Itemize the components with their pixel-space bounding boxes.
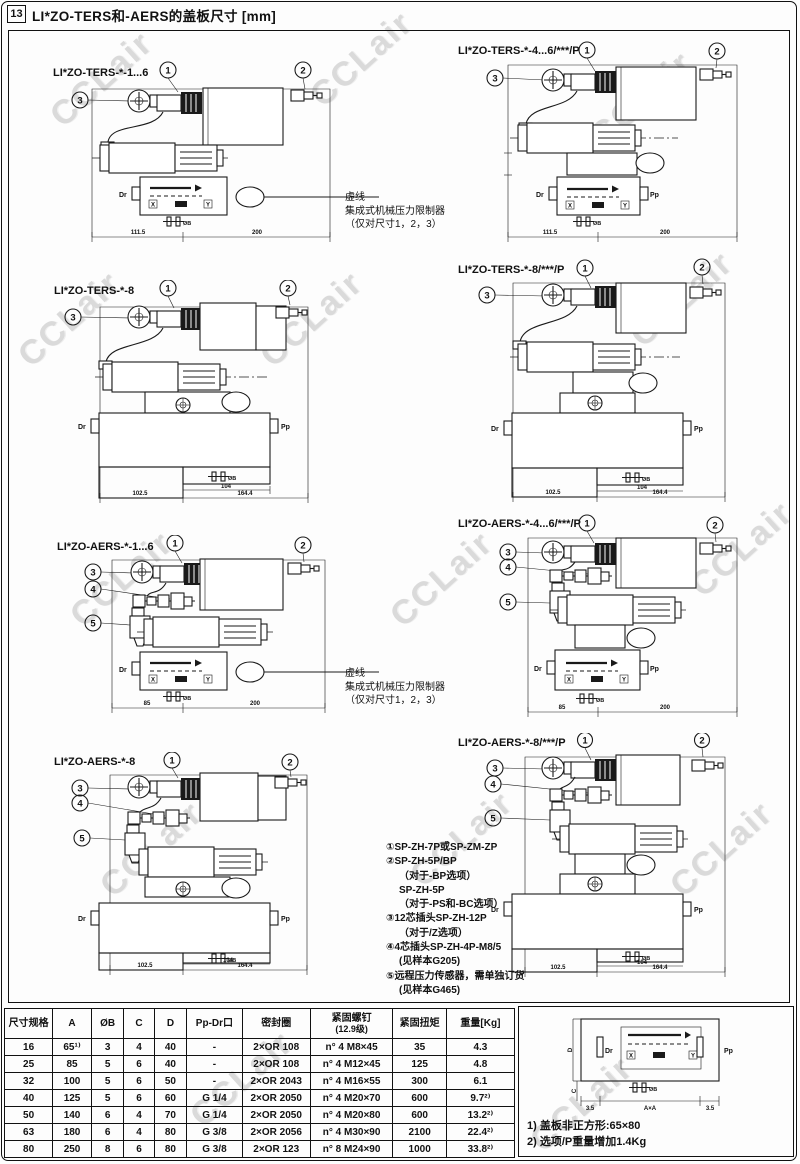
document-page: CCLair CCLair CCLair CCLair CCLair CCLai… (0, 0, 800, 1164)
callout-1: 1 (165, 284, 171, 295)
x-label: X (629, 1054, 633, 1060)
table-row: 40125 56 60G 1/4 2×OR 2050n° 4 M20×70 60… (5, 1090, 515, 1107)
page-title: LI*ZO-TERS和-AERS的盖板尺寸 [mm] (32, 5, 276, 25)
diagram-title: LI*ZO-AERS-*-1...6 (57, 541, 154, 553)
cell: 5 (91, 1073, 123, 1090)
cell: - (187, 1039, 243, 1056)
col-size: 尺寸规格 (5, 1009, 53, 1039)
dim-label: A×A (644, 1106, 657, 1112)
cell: 2×OR 2050 (242, 1090, 310, 1107)
port-label-pp: Pp (281, 424, 290, 431)
cell: 2100 (393, 1124, 446, 1141)
cell: 40 (154, 1056, 186, 1073)
col-d: D (154, 1009, 186, 1039)
cell: 80 (154, 1124, 186, 1141)
callout-3: 3 (484, 291, 489, 302)
diagram-aers-8: LI*ZO-AERS-*-8 1 2 3 4 5 Dr Pp 104 (40, 752, 415, 997)
dim-label: 164.4 (237, 491, 253, 497)
cell: 40 (154, 1039, 186, 1056)
cell: 100 (53, 1073, 92, 1090)
callout-1: 1 (582, 264, 588, 275)
callout-2: 2 (300, 541, 305, 552)
cell: 2×OR 2043 (242, 1073, 310, 1090)
cell: G 3/8 (187, 1124, 243, 1141)
cell: 63 (5, 1124, 53, 1141)
diagram-aers-4-6-p: LI*ZO-AERS-*-4...6/***/P 1 2 3 4 5 Dr Pp… (450, 512, 795, 740)
dim-label-d: D (568, 1047, 574, 1052)
diagram-title: LI*ZO-AERS-*-8 (54, 756, 135, 768)
section-number: 13 (7, 5, 26, 23)
port-label-pp: Pp (724, 1048, 733, 1055)
cover-plate-diagram: X Y Dr Pp D C 3.5 A×A 3.5 (533, 1013, 781, 1113)
cell: 600 (393, 1090, 446, 1107)
callout-2: 2 (714, 47, 719, 58)
note-line: （仅对尺寸1，2，3） (345, 218, 445, 232)
cell: 180 (53, 1124, 92, 1141)
cell: 35 (393, 1039, 446, 1056)
pressure-limiter-note: 虚线 集成式机械压力限制器 （仅对尺寸1，2，3） (345, 667, 445, 708)
diagram-title: LI*ZO-TERS-*-8/***/P (458, 264, 564, 276)
parts-list: ①SP-ZH-7P或SP-ZM-ZP ②SP-ZH-5P/BP （对于-BP选项… (386, 841, 524, 998)
cell: 6 (124, 1073, 154, 1090)
port-label-dr: Dr (119, 192, 127, 199)
cell: 50 (154, 1073, 186, 1090)
parts-line: ②SP-ZH-5P/BP (386, 855, 524, 869)
cell: 6 (124, 1090, 154, 1107)
cell: 3 (91, 1039, 123, 1056)
cell: 60 (154, 1090, 186, 1107)
cell: 8 (91, 1141, 123, 1158)
cell: n° 4 M20×70 (310, 1090, 393, 1107)
port-label-dr: Dr (534, 666, 542, 673)
cell: 6 (91, 1124, 123, 1141)
cell: 6 (91, 1107, 123, 1124)
size-table: 尺寸规格 A ØB C D Pp-Dr口 密封圈 紧固螺钉 (12.9级) 紧固… (4, 1008, 515, 1158)
cell: - (187, 1073, 243, 1090)
callout-3: 3 (77, 96, 82, 107)
dim-label: 104 (223, 958, 234, 964)
cell: 6 (124, 1141, 154, 1158)
dim-label: 104 (637, 485, 648, 491)
col-screws-line2: (12.9级) (335, 1024, 368, 1034)
diagram-ters-4-6-p: LI*ZO-TERS-*-4...6/***/P 1 2 3 Dr Pp 111… (450, 38, 795, 245)
cell: 50 (5, 1107, 53, 1124)
cell: 4.8 (446, 1056, 514, 1073)
cell: n° 4 M20×80 (310, 1107, 393, 1124)
callout-5: 5 (90, 619, 96, 630)
cell: 70 (154, 1107, 186, 1124)
diagram-title: LI*ZO-AERS-*-8/***/P (458, 737, 566, 749)
cell: 6.1 (446, 1073, 514, 1090)
col-b: ØB (91, 1009, 123, 1039)
cell: 5 (91, 1056, 123, 1073)
dim-label: 3.5 (706, 1106, 715, 1112)
callout-5: 5 (79, 834, 85, 845)
callout-3: 3 (492, 764, 497, 775)
port-label-pp: Pp (281, 916, 290, 923)
callout-4: 4 (490, 780, 496, 791)
cell: - (187, 1056, 243, 1073)
parts-line: ⑤远程压力传感器，需单独订货 (386, 970, 524, 984)
port-label-dr: Dr (78, 424, 86, 431)
callout-1: 1 (172, 539, 178, 550)
cell: G 1/4 (187, 1107, 243, 1124)
cell: 22.4²⁾ (446, 1124, 514, 1141)
cell: 4 (124, 1039, 154, 1056)
cell: 125 (393, 1056, 446, 1073)
diagram-ters-8-p: LI*ZO-TERS-*-8/***/P 1 2 3 Dr Pp 104 102… (450, 258, 798, 506)
cell: n° 8 M24×90 (310, 1141, 393, 1158)
cell: G 1/4 (187, 1090, 243, 1107)
dim-label: 111.5 (131, 230, 146, 236)
cell: 4 (124, 1107, 154, 1124)
callout-1: 1 (169, 756, 175, 767)
cell: 80 (154, 1141, 186, 1158)
dim-label: 104 (637, 960, 648, 966)
callout-2: 2 (712, 521, 717, 532)
cell: 1000 (393, 1141, 446, 1158)
dim-label: 200 (250, 701, 261, 707)
parts-line: （对于/Z选项） (386, 927, 524, 941)
footnote-1: 1) 盖板非正方形:65×80 (527, 1117, 640, 1133)
cell: 25 (5, 1056, 53, 1073)
table-row: 63180 64 80G 3/8 2×OR 2056n° 4 M30×90 21… (5, 1124, 515, 1141)
dim-label: 102.5 (545, 490, 561, 496)
port-label-pp: Pp (694, 907, 703, 914)
note-line: 虚线 (345, 667, 445, 681)
port-label-dr: Dr (119, 667, 127, 674)
callout-3: 3 (77, 784, 82, 795)
cell: 32 (5, 1073, 53, 1090)
cell: 5 (91, 1090, 123, 1107)
port-label-dr: Dr (605, 1048, 613, 1055)
cell: n° 4 M12×45 (310, 1056, 393, 1073)
note-line: 集成式机械压力限制器 (345, 681, 445, 695)
cell: 300 (393, 1073, 446, 1090)
port-label-dr: Dr (536, 192, 544, 199)
footnote-2: 2) 选项/P重量增加1.4Kg (527, 1133, 646, 1149)
callout-2: 2 (699, 263, 704, 274)
dim-label-c: C (572, 1088, 578, 1093)
parts-line: （对于-PS和-BC选项） (386, 898, 524, 912)
table-row: 50140 64 70G 1/4 2×OR 2050n° 4 M20×80 60… (5, 1107, 515, 1124)
cell: G 3/8 (187, 1141, 243, 1158)
cell: 33.8²⁾ (446, 1141, 514, 1158)
callout-3: 3 (90, 568, 95, 579)
diagram-title: LI*ZO-TERS-*-8 (54, 285, 134, 297)
note-line: 集成式机械压力限制器 (345, 205, 445, 219)
dim-label: 102.5 (550, 965, 566, 971)
cell: n° 4 M30×90 (310, 1124, 393, 1141)
callout-2: 2 (287, 758, 292, 769)
callout-4: 4 (90, 585, 96, 596)
dim-label: 85 (144, 701, 151, 707)
callout-1: 1 (584, 46, 590, 57)
cell: 140 (53, 1107, 92, 1124)
parts-line: (见样本G465) (386, 984, 524, 998)
cell: 80 (5, 1141, 53, 1158)
port-label-pp: Pp (650, 192, 659, 199)
callout-1: 1 (584, 519, 590, 530)
cell: 2×OR 108 (242, 1039, 310, 1056)
cell: n° 4 M8×45 (310, 1039, 393, 1056)
cover-plate-box: X Y Dr Pp D C 3.5 A×A 3.5 1) 盖板非正方形:65×8… (518, 1006, 794, 1157)
col-seal: 密封圈 (242, 1009, 310, 1039)
table-row: 2585 56 40- 2×OR 108n° 4 M12×45 1254.8 (5, 1056, 515, 1073)
col-weight: 重量[Kg] (446, 1009, 514, 1039)
table-row: 1665¹⁾ 34 40- 2×OR 108n° 4 M8×45 354.3 (5, 1039, 515, 1056)
cell: 125 (53, 1090, 92, 1107)
port-label-dr: Dr (491, 426, 499, 433)
dim-label: 200 (660, 230, 671, 236)
cell: 2×OR 2056 (242, 1124, 310, 1141)
diagram-title: LI*ZO-AERS-*-4...6/***/P (458, 518, 581, 530)
callout-5: 5 (490, 814, 496, 825)
diagram-ters-1-6: LI*ZO-TERS-*-1...6 1 2 3 Dr 111.5 200 (45, 60, 395, 245)
callout-2: 2 (285, 284, 290, 295)
col-a: A (53, 1009, 92, 1039)
dim-label: 111.5 (543, 230, 558, 236)
diagram-aers-1-6: LI*ZO-AERS-*-1...6 1 2 3 4 5 Dr 85 200 (45, 535, 395, 740)
cell: 9.7²⁾ (446, 1090, 514, 1107)
cell: 13.2²⁾ (446, 1107, 514, 1124)
callout-1: 1 (582, 736, 588, 747)
parts-line: ④4芯插头SP-ZH-4P-M8/5 (386, 941, 524, 955)
dim-label: 164.4 (652, 490, 668, 496)
parts-line: （对于-BP选项） (386, 870, 524, 884)
table-row: 32100 56 50- 2×OR 2043n° 4 M16×55 3006.1 (5, 1073, 515, 1090)
parts-line: ③12芯插头SP-ZH-12P (386, 912, 524, 926)
cell: 40 (5, 1090, 53, 1107)
callout-2: 2 (699, 736, 704, 747)
cell: 600 (393, 1107, 446, 1124)
dim-label: 200 (252, 230, 263, 236)
cell: 65¹⁾ (53, 1039, 92, 1056)
port-label-pp: Pp (650, 666, 659, 673)
note-line: 虚线 (345, 191, 445, 205)
callout-3: 3 (70, 313, 75, 324)
cell: 2×OR 2050 (242, 1107, 310, 1124)
col-screws-line1: 紧固螺钉 (332, 1013, 372, 1024)
cell: 85 (53, 1056, 92, 1073)
callout-2: 2 (300, 66, 305, 77)
col-torque: 紧固扭矩 (393, 1009, 446, 1039)
cell: 4 (124, 1124, 154, 1141)
cell: 4.3 (446, 1039, 514, 1056)
col-c: C (124, 1009, 154, 1039)
diagram-title: LI*ZO-TERS-*-1...6 (53, 67, 148, 79)
callout-4: 4 (505, 563, 511, 574)
note-line: （仅对尺寸1，2，3） (345, 694, 445, 708)
callout-3: 3 (505, 548, 510, 559)
diagram-ters-8: LI*ZO-TERS-*-8 1 2 3 Dr Pp 104 102.5 164… (40, 280, 415, 505)
callout-5: 5 (505, 598, 511, 609)
dim-label: 164.4 (237, 963, 253, 969)
cell: 16 (5, 1039, 53, 1056)
cell: 2×OR 108 (242, 1056, 310, 1073)
parts-line: (见样本G205) (386, 955, 524, 969)
dim-label: 104 (221, 484, 232, 490)
dim-label: 164.4 (652, 965, 668, 971)
cell: 2×OR 123 (242, 1141, 310, 1158)
y-label: Y (691, 1054, 695, 1060)
pressure-limiter-note: 虚线 集成式机械压力限制器 （仅对尺寸1，2，3） (345, 191, 445, 232)
dim-label: 102.5 (137, 963, 153, 969)
cell: 250 (53, 1141, 92, 1158)
col-screws: 紧固螺钉 (12.9级) (310, 1009, 393, 1039)
cell: 6 (124, 1056, 154, 1073)
dim-label: 102.5 (132, 491, 148, 497)
dim-label: 85 (559, 705, 566, 711)
callout-1: 1 (165, 66, 171, 77)
col-port: Pp-Dr口 (187, 1009, 243, 1039)
callout-3: 3 (492, 74, 497, 85)
dim-label: 3.5 (586, 1106, 595, 1112)
parts-line: SP-ZH-5P (386, 884, 524, 898)
dim-label: 200 (660, 705, 671, 711)
table-row: 80250 86 80G 3/8 2×OR 123n° 8 M24×90 100… (5, 1141, 515, 1158)
callout-4: 4 (77, 799, 83, 810)
diagram-title: LI*ZO-TERS-*-4...6/***/P (458, 45, 580, 57)
parts-line: ①SP-ZH-7P或SP-ZM-ZP (386, 841, 524, 855)
cell: n° 4 M16×55 (310, 1073, 393, 1090)
port-label-pp: Pp (694, 426, 703, 433)
port-label-dr: Dr (78, 916, 86, 923)
table-header-row: 尺寸规格 A ØB C D Pp-Dr口 密封圈 紧固螺钉 (12.9级) 紧固… (5, 1009, 515, 1039)
